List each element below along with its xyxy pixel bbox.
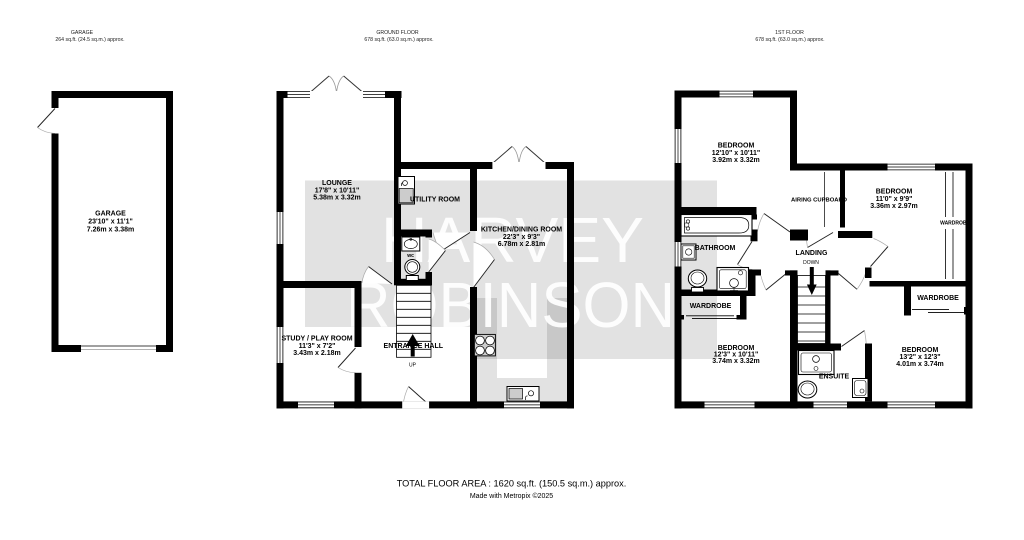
svg-text:3.74m x 3.32m: 3.74m x 3.32m xyxy=(712,358,759,365)
svg-text:3.92m x 3.32m: 3.92m x 3.32m xyxy=(712,157,759,164)
svg-text:3.43m x 2.18m: 3.43m x 2.18m xyxy=(293,350,340,357)
svg-text:TOTAL FLOOR AREA : 1620 sq.ft.: TOTAL FLOOR AREA : 1620 sq.ft. (150.5 sq… xyxy=(397,479,627,489)
svg-text:264 sq.ft. (24.5 sq.m.) approx: 264 sq.ft. (24.5 sq.m.) approx. xyxy=(55,37,124,43)
svg-text:22'3" x 9'3": 22'3" x 9'3" xyxy=(503,234,540,241)
svg-text:BEDROOM: BEDROOM xyxy=(718,143,755,150)
svg-text:ENSUITE: ENSUITE xyxy=(819,374,850,381)
svg-text:678 sq.ft. (63.0 sq.m.) approx: 678 sq.ft. (63.0 sq.m.) approx. xyxy=(364,37,433,43)
svg-text:17'8" x 10'11": 17'8" x 10'11" xyxy=(315,187,360,194)
svg-text:11'3" x 7'2": 11'3" x 7'2" xyxy=(299,343,336,350)
svg-text:AIRING CUPBOARD: AIRING CUPBOARD xyxy=(791,198,847,204)
svg-text:WARDROBE: WARDROBE xyxy=(940,221,970,227)
svg-text:wc: wc xyxy=(406,253,414,259)
svg-text:3.36m x 2.97m: 3.36m x 2.97m xyxy=(870,203,917,210)
svg-text:7.26m x 3.38m: 7.26m x 3.38m xyxy=(87,227,134,234)
svg-text:GROUND FLOOR: GROUND FLOOR xyxy=(376,30,419,36)
svg-text:UTILITY ROOM: UTILITY ROOM xyxy=(410,197,460,204)
svg-text:6.78m x 2.81m: 6.78m x 2.81m xyxy=(498,241,545,248)
svg-text:STUDY / PLAY ROOM: STUDY / PLAY ROOM xyxy=(281,336,352,343)
svg-text:WARDROBE: WARDROBE xyxy=(690,303,732,310)
svg-text:23'10" x 11'1": 23'10" x 11'1" xyxy=(88,219,133,226)
svg-text:678 sq.ft. (63.0 sq.m.) approx: 678 sq.ft. (63.0 sq.m.) approx. xyxy=(755,37,824,43)
svg-text:12'10" x 10'11": 12'10" x 10'11" xyxy=(712,150,761,157)
svg-text:UP: UP xyxy=(409,363,417,369)
svg-text:BEDROOM: BEDROOM xyxy=(876,189,913,196)
svg-text:GARAGE: GARAGE xyxy=(71,30,94,36)
svg-text:ENTRANCE HALL: ENTRANCE HALL xyxy=(384,343,444,350)
svg-text:LOUNGE: LOUNGE xyxy=(322,180,352,187)
svg-text:4.01m x 3.74m: 4.01m x 3.74m xyxy=(896,361,943,368)
svg-text:5.38m x 3.32m: 5.38m x 3.32m xyxy=(313,195,360,202)
svg-text:GARAGE: GARAGE xyxy=(95,211,126,218)
svg-text:DOWN: DOWN xyxy=(803,260,819,266)
svg-text:WARDROBE: WARDROBE xyxy=(917,295,959,302)
svg-text:1ST FLOOR: 1ST FLOOR xyxy=(775,30,804,36)
svg-text:KITCHEN/DINING ROOM: KITCHEN/DINING ROOM xyxy=(481,227,562,234)
svg-text:BEDROOM: BEDROOM xyxy=(902,347,939,354)
svg-text:11'0" x 9'9": 11'0" x 9'9" xyxy=(876,196,913,203)
svg-text:LANDING: LANDING xyxy=(796,250,828,257)
svg-text:Made with Metropix ©2025: Made with Metropix ©2025 xyxy=(470,492,553,500)
svg-text:13'2" x 12'3": 13'2" x 12'3" xyxy=(899,354,940,361)
svg-text:BATHROOM: BATHROOM xyxy=(695,245,736,252)
